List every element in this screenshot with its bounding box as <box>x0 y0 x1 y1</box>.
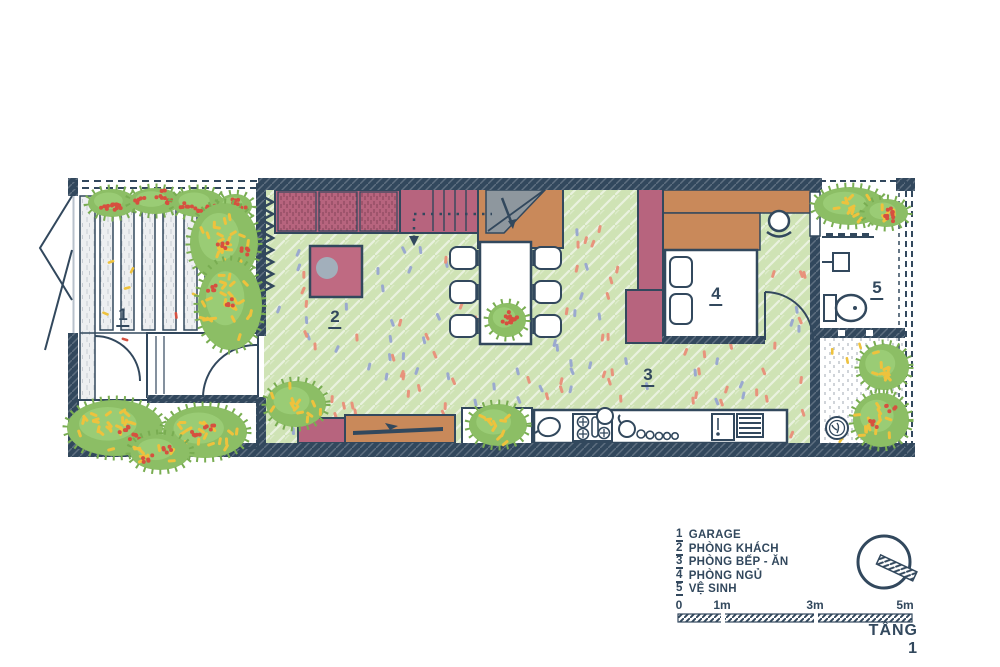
egg <box>672 433 678 439</box>
toilet-tank <box>824 295 836 321</box>
bathroom-sink <box>833 253 849 271</box>
pillow <box>670 294 692 324</box>
garage-paver-strip <box>163 200 176 330</box>
legend: 1 GARAGE 2 PHÒNG KHÁCH 3 PHÒNG BẾP - ĂN … <box>676 529 789 597</box>
sofa-cushion <box>319 192 357 231</box>
room-label-bathroom: 5 <box>870 279 883 300</box>
scale-tick-0: 0 <box>676 598 683 612</box>
planter-tick <box>862 233 869 237</box>
scale-tick-5m: 5m <box>896 598 913 612</box>
toilet-drain <box>853 306 857 310</box>
confetti-dash <box>345 303 348 311</box>
confetti-dash <box>573 309 576 317</box>
scale-divider <box>814 613 818 623</box>
bedroom-bottom-wall <box>662 336 765 344</box>
bed-headboard <box>663 213 760 250</box>
confetti-dash <box>773 342 776 350</box>
dining-chair <box>534 247 561 269</box>
legend-item-living: 2 PHÒNG KHÁCH <box>676 543 789 557</box>
confetti-dash <box>607 333 610 341</box>
legend-number: 4 <box>676 570 683 583</box>
room-label-living: 2 <box>328 308 341 329</box>
scale-tick-3m: 3m <box>806 598 823 612</box>
top-wall <box>258 178 822 190</box>
egg <box>664 433 671 440</box>
confetti-dash <box>575 228 578 236</box>
confetti-dash <box>355 333 358 341</box>
confetti-dash <box>330 395 333 403</box>
kettle <box>619 421 635 437</box>
folding-gate-symbol <box>45 250 72 350</box>
floor-plan-drawing <box>0 0 1000 667</box>
room-label-kitchen: 3 <box>641 366 654 387</box>
confetti-dash <box>576 241 579 249</box>
legend-number: 2 <box>676 543 683 556</box>
petal <box>831 348 834 355</box>
wall-gap <box>866 330 873 336</box>
folding-gate-symbol <box>40 196 72 300</box>
confetti-dash <box>755 388 758 396</box>
legend-name: VỆ SINH <box>689 583 737 597</box>
legend-number: 3 <box>676 556 683 569</box>
legend-item-garage: 1 GARAGE <box>676 529 789 543</box>
toilet-bowl <box>836 295 866 321</box>
floor-title: TẦNG 1 <box>858 622 918 658</box>
room-label-garage: 1 <box>116 306 129 327</box>
legend-item-bedroom: 4 PHÒNG NGỦ <box>676 570 789 584</box>
garage-paver-strip <box>100 200 113 330</box>
wall-gap <box>838 330 845 336</box>
garage-paver-strip <box>142 200 155 330</box>
wardrobe-lower <box>626 290 663 343</box>
floor-plan-page: 1 2 3 4 5 1 GARAGE 2 PHÒNG KHÁCH 3 PHÒNG… <box>0 0 1000 667</box>
pillow <box>670 257 692 287</box>
wardrobe-upper <box>638 188 663 290</box>
confetti-dash <box>619 395 622 403</box>
planter-tick <box>838 233 845 237</box>
confetti-dash <box>444 402 447 410</box>
sofa-cushion <box>278 192 316 231</box>
room-label-bedroom: 4 <box>709 285 722 306</box>
dining-chair <box>450 315 477 337</box>
garage-paver-strip <box>184 200 197 330</box>
egg <box>637 430 645 438</box>
legend-name: PHÒNG NGỦ <box>689 570 763 584</box>
confetti-dash <box>313 342 316 350</box>
bedside-lamp <box>769 211 789 231</box>
legend-item-bathroom: 5 VỆ SINH <box>676 583 789 597</box>
legend-name: PHÒNG BẾP - ĂN <box>689 556 789 570</box>
kitchen-sink <box>712 414 734 440</box>
planter-tick <box>850 233 857 237</box>
pouf <box>316 257 338 279</box>
egg <box>646 431 654 439</box>
confetti-dash <box>402 352 405 360</box>
sofa-cushion <box>360 192 397 231</box>
north-indicator <box>858 536 917 588</box>
garage-door-swing <box>95 336 140 381</box>
legend-name: PHÒNG KHÁCH <box>689 543 779 557</box>
legend-number: 1 <box>676 529 683 542</box>
scale-tick-1m: 1m <box>713 598 730 612</box>
bedroom-shelf-top <box>663 190 812 213</box>
confetti-dash <box>691 396 695 404</box>
dining-chair <box>534 281 561 303</box>
garage-paver-strip <box>80 196 95 400</box>
dining-chair <box>450 247 477 269</box>
confetti-dash <box>407 390 411 398</box>
scale-bar-strip <box>678 614 912 622</box>
bathroom-courtyard-wall <box>820 328 905 338</box>
planter-tick <box>826 233 833 237</box>
legend-number: 5 <box>676 583 683 596</box>
egg <box>655 432 662 439</box>
sink-drain <box>716 432 720 436</box>
petal <box>121 337 128 342</box>
scale-divider <box>721 613 725 623</box>
dining-chair <box>534 315 561 337</box>
dining-chair <box>450 281 477 303</box>
pot <box>597 408 613 424</box>
confetti-dash <box>302 271 305 279</box>
legend-name: GARAGE <box>689 529 741 543</box>
confetti-dash <box>376 267 379 275</box>
confetti-dash <box>797 325 800 333</box>
legend-item-kitchen: 3 PHÒNG BẾP - ĂN <box>676 556 789 570</box>
